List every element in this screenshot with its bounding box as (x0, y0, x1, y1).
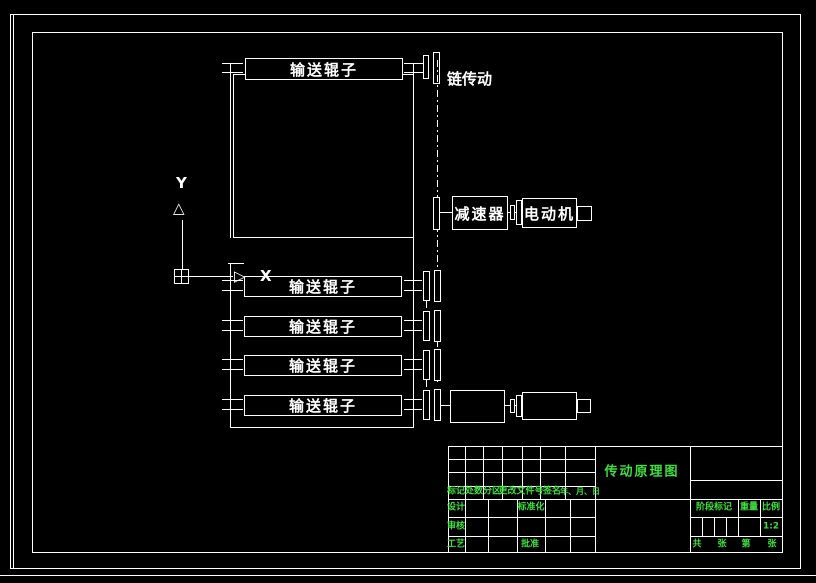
sheet-unit-label: 张 (717, 541, 726, 550)
title-block-grid-line (448, 517, 595, 518)
chain-drive-label: 链传动 (447, 72, 492, 87)
title-block-grid-line (465, 499, 466, 553)
bearing-line (404, 290, 422, 291)
roller-box: 输送辊子 (244, 395, 402, 416)
title-block-grid-line (760, 499, 761, 536)
sprocket (423, 350, 430, 380)
bearing-line (222, 290, 243, 291)
motor-label: 电动机 (524, 203, 575, 224)
standardization-label: 标准化 (517, 504, 544, 513)
sprocket (423, 311, 430, 341)
bearing-line (404, 369, 422, 370)
ucs-origin-cross-line (181, 269, 182, 284)
title-block-grid-line (738, 499, 739, 536)
sprocket (434, 270, 441, 302)
design-label: 设计 (447, 504, 465, 513)
weight-label: 重量 (740, 504, 758, 513)
ucs-x-axis-label: X (260, 269, 272, 284)
top-shaft-coupling (423, 55, 429, 79)
cad-drawing-canvas[interactable]: 输送辊子 链传动 减速器 电动机 输送辊子 输送辊子 (0, 0, 816, 583)
roller-label: 输送辊子 (289, 355, 357, 376)
top-roller-left-bearing-line (222, 63, 243, 64)
bearing-line (222, 359, 243, 360)
bearing-line (404, 320, 422, 321)
sprocket (434, 349, 441, 381)
top-roller-label: 输送辊子 (290, 59, 358, 80)
revision-header-docno: 更改文件号 (498, 488, 543, 497)
drawing-title: 传动原理图 (604, 466, 679, 479)
title-block-grid-line (726, 517, 727, 536)
coupling-element (510, 205, 515, 220)
bottom-motor-box (522, 392, 577, 420)
ucs-y-axis-label: Y (176, 176, 187, 191)
left-frame-line-top (230, 63, 231, 238)
process-label: 工艺 (447, 541, 465, 550)
scale-value: 1:2 (763, 523, 779, 532)
title-block-grid-line (690, 480, 783, 481)
reducer-input-sprocket (433, 197, 440, 230)
left-frame-line-bottom (230, 263, 231, 427)
top-conveyor-bed (233, 74, 414, 238)
chain-centerline (437, 60, 438, 302)
sheet-unit-label: 张 (767, 541, 776, 550)
bearing-line (222, 320, 243, 321)
sprocket (434, 389, 441, 421)
bearing-line (222, 330, 243, 331)
top-roller-left-bearing-line (222, 72, 243, 73)
bearing-line (222, 369, 243, 370)
bearing-line (222, 409, 243, 410)
title-block-grid-line (545, 499, 546, 553)
revision-header-mark: 标记 (447, 488, 465, 497)
right-frame-line (413, 63, 414, 427)
reducer-box: 减速器 (452, 196, 508, 230)
reducer-label: 减速器 (454, 203, 505, 224)
bearing-line (404, 280, 422, 281)
revision-header-count: 处数 (465, 488, 483, 497)
sheet-total-label: 共 (692, 541, 701, 550)
title-block-grid-line (570, 499, 571, 553)
shaft-line (440, 212, 452, 213)
sprocket (423, 271, 430, 301)
ucs-x-axis-line (189, 276, 233, 277)
title-block-grid-line (714, 517, 715, 536)
sprocket (434, 310, 441, 342)
top-roller-box: 输送辊子 (245, 58, 403, 80)
bearing-line (404, 359, 422, 360)
lower-frame-bottom-line (230, 427, 414, 428)
motor-shaft-stub (577, 399, 591, 413)
bearing-line (404, 330, 422, 331)
roller-box: 输送辊子 (244, 355, 402, 376)
roller-box: 输送辊子 (244, 316, 402, 337)
motor-box: 电动机 (522, 198, 577, 228)
sprocket (423, 390, 430, 420)
bottom-reducer-box (450, 390, 505, 423)
stage-mark-label: 阶段标记 (696, 504, 732, 513)
ucs-up-arrow-icon: △ (173, 201, 185, 216)
roller-label: 输送辊子 (289, 316, 357, 337)
coupling-element (510, 399, 515, 413)
title-block-grid-line (448, 536, 595, 537)
roller-label: 输送辊子 (289, 276, 357, 297)
sheet-binding-edge-line (13, 14, 14, 569)
title-block-grid-line (702, 517, 703, 536)
bearing-line (404, 399, 422, 400)
sheet-page-label: 第 (741, 541, 750, 550)
revision-header-signature: 签名 (543, 488, 561, 497)
bearing-line (222, 399, 243, 400)
revision-header-date: 年、月、日 (560, 488, 600, 496)
title-block-grid-line (448, 499, 783, 500)
approve-label: 批准 (521, 541, 539, 550)
bearing-line (404, 409, 422, 410)
roller-label: 输送辊子 (289, 395, 357, 416)
shaft-line (441, 405, 450, 406)
title-block-grid-line (690, 517, 783, 518)
audit-label: 审核 (447, 523, 465, 532)
title-block-grid-line (690, 536, 783, 537)
scale-label: 比例 (762, 504, 780, 513)
motor-shaft-stub (577, 206, 592, 221)
title-block-grid-line (488, 499, 489, 553)
app-bottom-divider-line (0, 575, 816, 576)
ucs-y-axis-line (182, 220, 183, 270)
ucs-right-arrow-icon: ▷ (234, 269, 246, 284)
